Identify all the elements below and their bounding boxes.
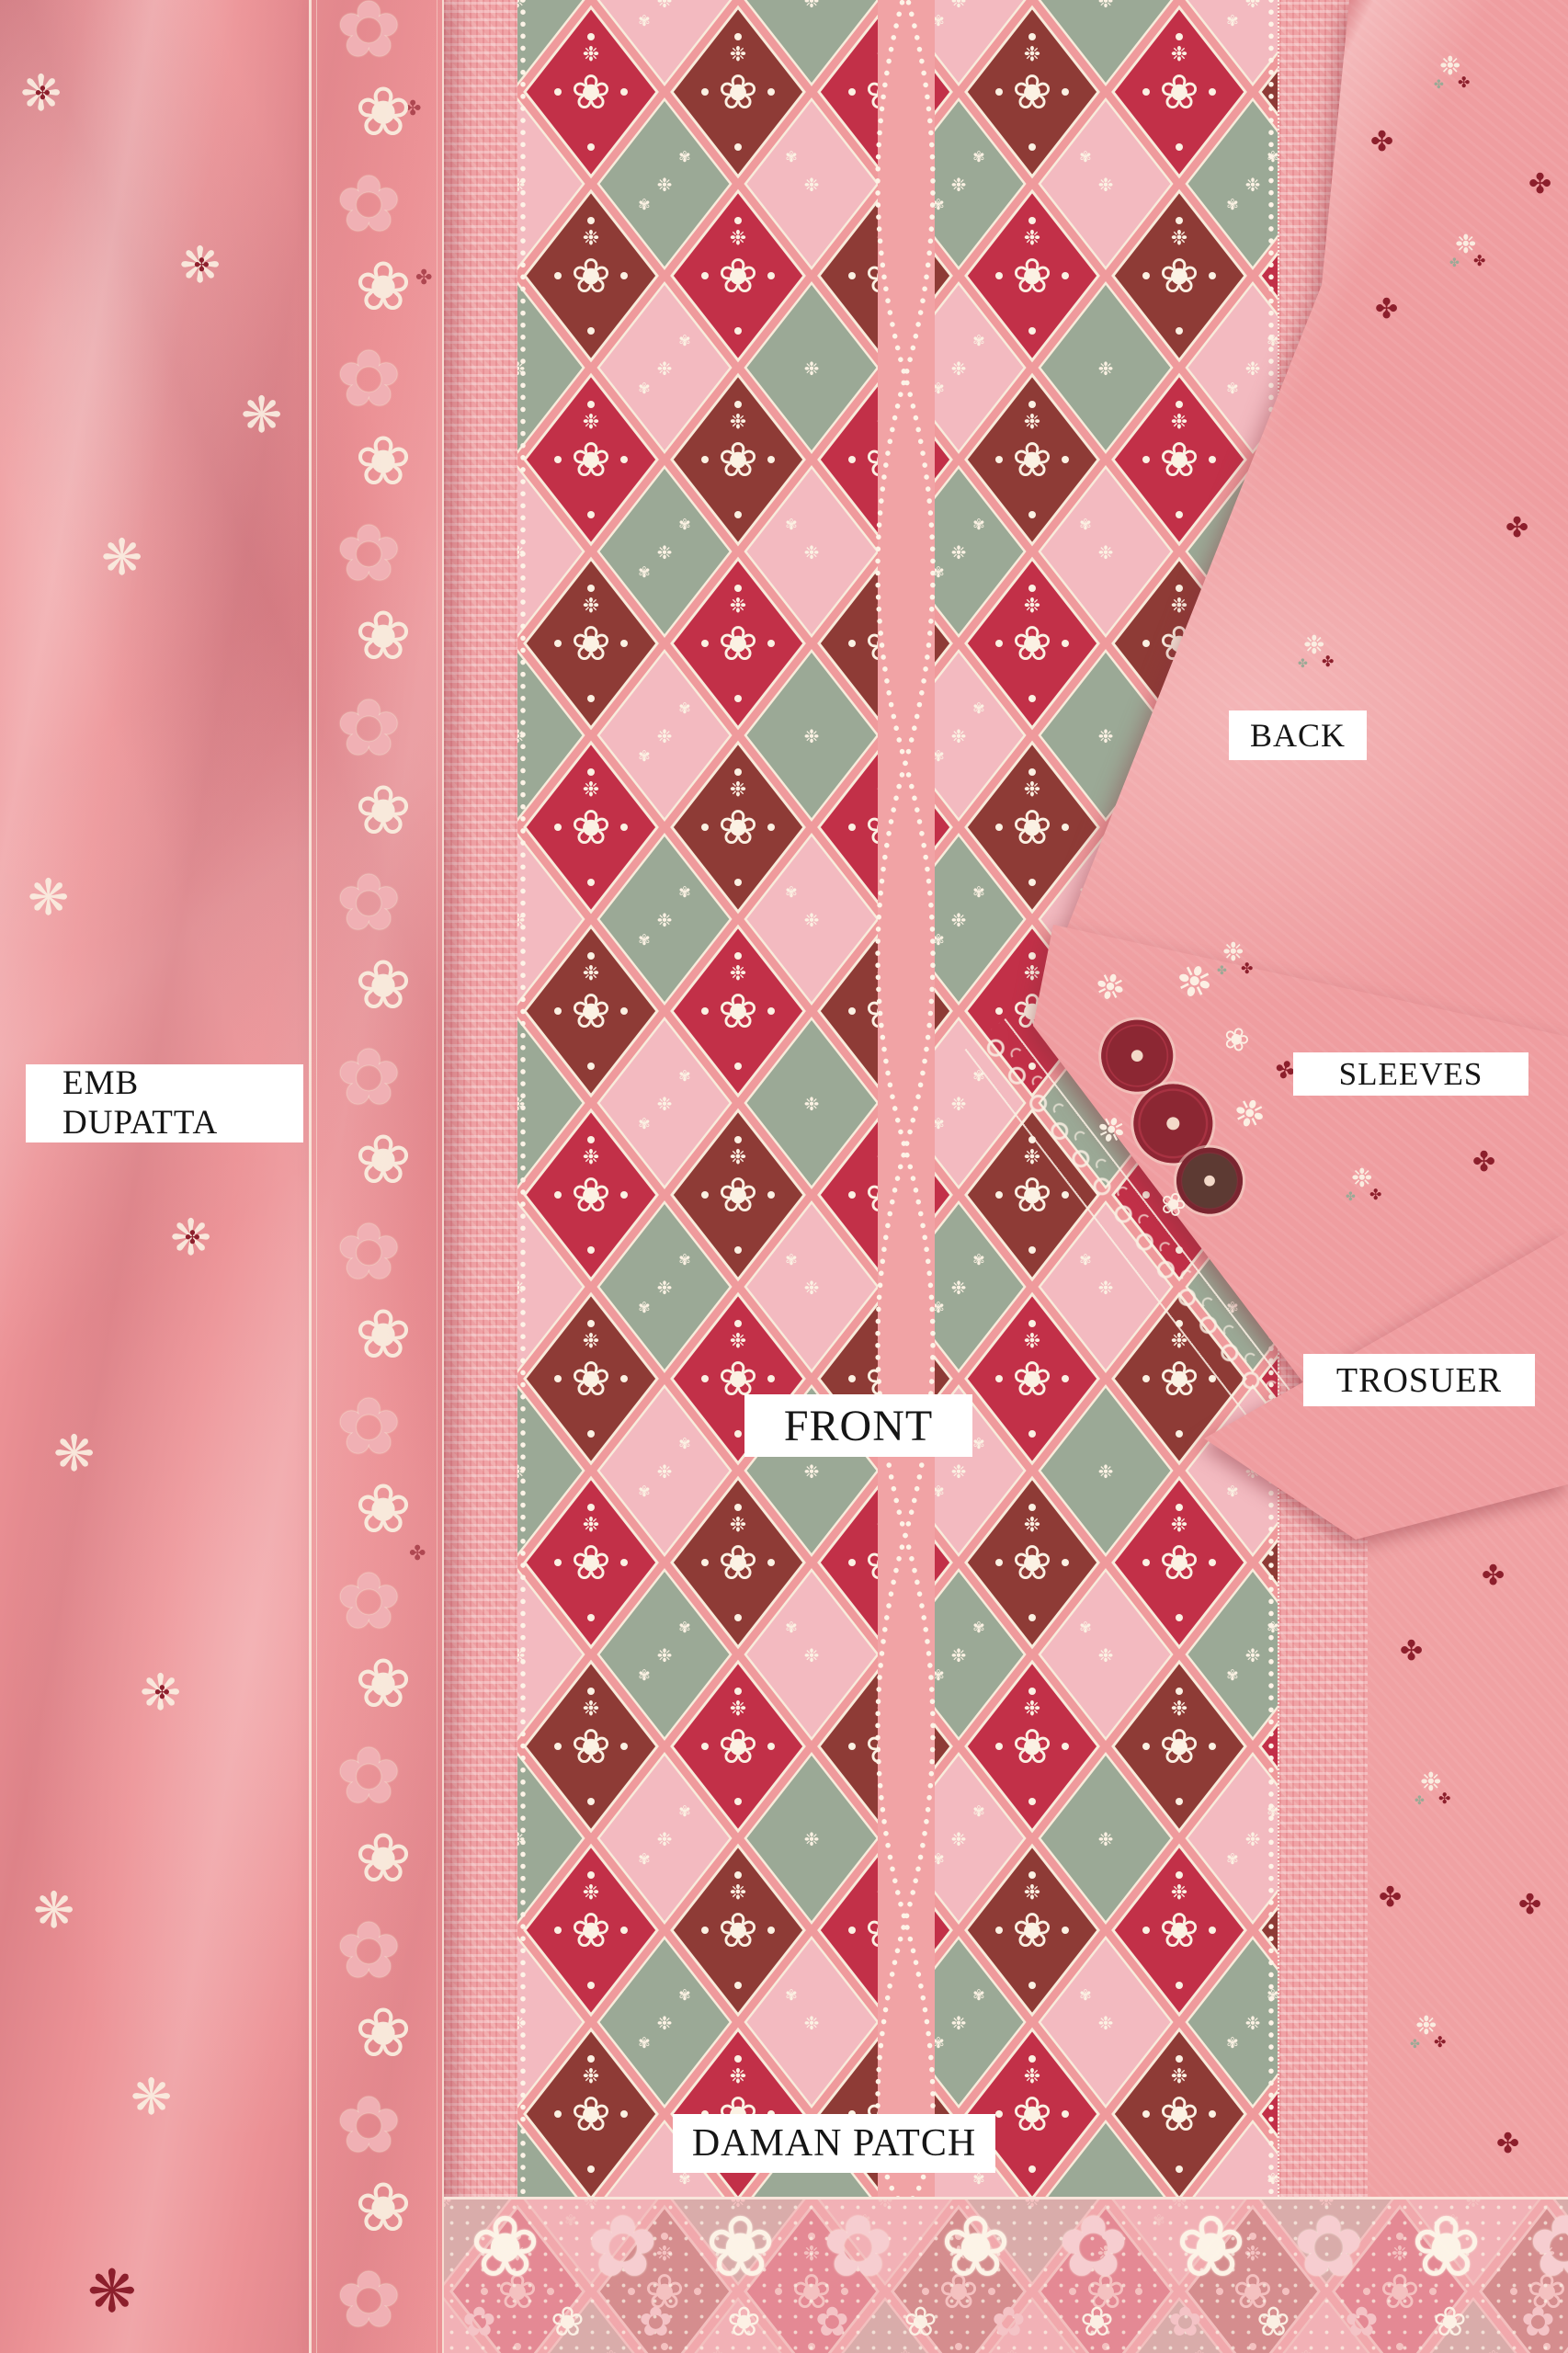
daman-small-flower-icon: ❀ [1433,2302,1467,2343]
panel-tonal-strip-left [444,0,519,2197]
chain-flower-icon: ✿ [336,0,401,68]
label-emb-line1: EMB [62,1064,139,1104]
chain-flower-icon: ✿ [336,1039,401,1116]
trouser-fabric-flat [1368,0,1568,2197]
buti-star-icon: ❋ [241,391,282,440]
daman-flower-icon: ✿ [587,2205,658,2290]
leaf-spray-icon: ❀ [1219,1021,1254,1059]
label-sleeves: SLEEVES [1293,1052,1528,1096]
daman-small-flower-icon: ❀ [903,2302,937,2343]
label-trouser: TROSUER [1303,1354,1535,1406]
chain-flower-icon: ❀ [355,602,412,670]
daman-small-flower-icon: ✿ [1345,2302,1379,2343]
chain-flower-icon: ❀ [355,951,412,1019]
daman-flower-icon: ✿ [1293,2205,1364,2290]
chain-flower-icon: ✿ [336,2086,401,2164]
label-daman-patch: DAMAN PATCH [673,2114,995,2173]
chain-flower-icon: ❀ [355,1999,412,2067]
leaf-spray-icon: ❉ [1093,1111,1130,1152]
chain-flower-icon: ❀ [355,1824,412,1893]
daman-small-flower-icon: ❀ [727,2302,761,2343]
label-back: BACK [1229,710,1367,760]
buti-star-icon: ❋✤ [140,1668,181,1718]
chain-flower-icon: ❀ [355,1126,412,1194]
chain-flower-icon: ❀ [355,1475,412,1543]
daman-small-flower-icon: ❀ [551,2302,585,2343]
daman-small-flower-icon: ✿ [1168,2302,1202,2343]
chain-flower-icon: ✿ [336,165,401,243]
label-emb-dupatta: EMB DUPATTA [26,1064,303,1142]
label-emb-line2: DUPATTA [62,1104,218,1143]
fabric-suit-photo: ❀ ❀ ❀ ❀ ❉ ❉ ❉ ❉ ❉❉❉ ❉❉❉ ❉❉❉ ✾✾ ✾✾ ✾✾ [0,0,1568,2353]
chain-flower-icon: ✿ [336,515,401,592]
daman-small-flower-icon: ✿ [462,2302,496,2343]
daman-small-flower-icon: ✿ [1521,2302,1555,2343]
daman-flower-row: ❀✿❀✿❀✿❀✿❀✿✿❀✿❀✿❀✿❀✿❀✿❀✿ [444,2200,1568,2353]
chain-flower-icon: ✿ [336,1737,401,1814]
daman-border: ❀✿❀✿❀✿❀✿❀✿✿❀✿❀✿❀✿❀✿❀✿❀✿ [444,2197,1568,2353]
chain-flower-icon: ❀ [355,253,412,321]
buti-star-icon: ❋ [101,533,142,583]
daman-flower-icon: ✿ [823,2205,893,2290]
chain-flower-icon: ❀ [355,777,412,845]
daman-flower-icon: ✿ [1528,2205,1568,2290]
chain-flower-icon: ❀ [355,1301,412,1369]
daman-small-flower-icon: ❀ [1080,2302,1114,2343]
daman-small-flower-icon: ❀ [1256,2302,1290,2343]
chain-flower-icon: ✿ [336,2261,401,2338]
buti-star-icon: ❋✤ [179,241,221,290]
chain-flower-icon: ❀ [355,78,412,146]
daman-flower-icon: ✿ [1058,2205,1129,2290]
flower-chain: ✿❀✿❀✿❀✿❀✿❀✿❀✿❀✿❀✿❀✿❀✿❀✿❀✿❀✿ [309,0,444,2353]
leaf-spray-icon: ❉ [1171,956,1218,1007]
label-front: FRONT [744,1394,972,1457]
leaf-spray-icon: ❉ [1091,966,1130,1008]
daman-flower-icon: ❀ [705,2205,776,2290]
chain-flower-icon: ✿ [336,1912,401,1989]
chain-flower-icon: ❀ [355,427,412,495]
daman-small-flower-icon: ✿ [815,2302,849,2343]
center-seam [878,0,935,2197]
dupatta-border-strip: ✿❀✿❀✿❀✿❀✿❀✿❀✿❀✿❀✿❀✿❀✿❀✿❀✿❀✿ [309,0,444,2353]
buti-star-icon: ❋✤ [20,69,62,119]
buti-star-icon: ❋ [28,873,69,923]
leaf-spray-icon: ❉ [1229,1092,1269,1136]
chain-flower-icon: ❀ [355,1650,412,1718]
daman-flower-icon: ❀ [1411,2205,1482,2290]
chain-flower-icon: ✿ [336,864,401,941]
daman-flower-icon: ❀ [1176,2205,1246,2290]
daman-small-flower-icon: ✿ [639,2302,673,2343]
daman-flower-icon: ❀ [470,2205,540,2290]
buti-star-icon: ❋ [131,2073,172,2122]
buti-star-icon: ❋ [53,1429,95,1479]
buti-star-icon: ❋ [33,1886,74,1936]
chain-flower-icon: ✿ [336,1388,401,1465]
chain-flower-icon: ❀ [355,2174,412,2242]
chain-flower-icon: ✿ [336,340,401,417]
daman-small-flower-icon: ✿ [992,2302,1026,2343]
chain-flower-icon: ✿ [336,1213,401,1290]
leaf-spray-icon: ❀ [1155,1186,1190,1223]
chain-flower-icon: ✿ [336,689,401,767]
buti-star-icon: ❋✤ [170,1213,211,1263]
chain-flower-icon: ✿ [336,1563,401,1640]
daman-flower-icon: ❀ [940,2205,1011,2290]
buti-star-icon: ❋ [87,2263,137,2322]
